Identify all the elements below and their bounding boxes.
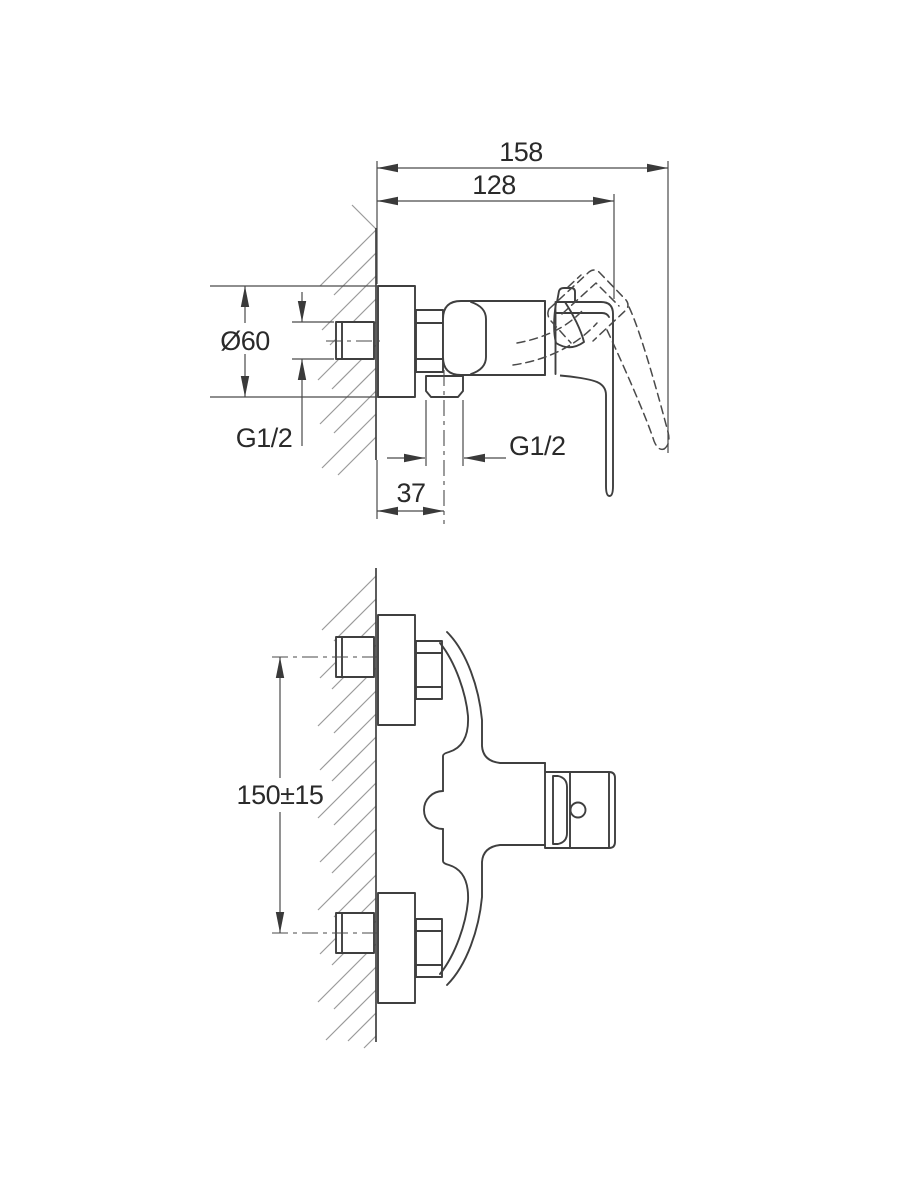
union-nut-bottom [416, 919, 442, 977]
dim-150-label: 150±15 [237, 780, 324, 810]
union-nut-top [416, 641, 442, 699]
body-sleeve-bottom [447, 845, 545, 985]
faucet-body-side [443, 301, 545, 375]
dim-37-label: 37 [396, 478, 425, 508]
dim-128-label: 128 [472, 170, 516, 200]
faucet-plan-view [336, 615, 615, 1003]
union-nut-side [416, 310, 443, 372]
dim-outlet-thread-label: G1/2 [509, 431, 566, 461]
faucet-dimension-drawing: 158 128 Ø60 G1/2 37 G1/2 [0, 0, 900, 1200]
escutcheon-bottom [378, 893, 415, 1003]
dim-158-label: 158 [499, 137, 543, 167]
dim-inlet-thread-label: G1/2 [236, 423, 293, 453]
escutcheon-side [378, 286, 415, 397]
outlet-bump [424, 791, 443, 829]
cartridge-collar-plan [545, 763, 570, 848]
dim-escutcheon-diameter-label: Ø60 [220, 326, 270, 356]
escutcheon-top [378, 615, 415, 725]
technical-drawing-page: 158 128 Ø60 G1/2 37 G1/2 [0, 0, 900, 1200]
